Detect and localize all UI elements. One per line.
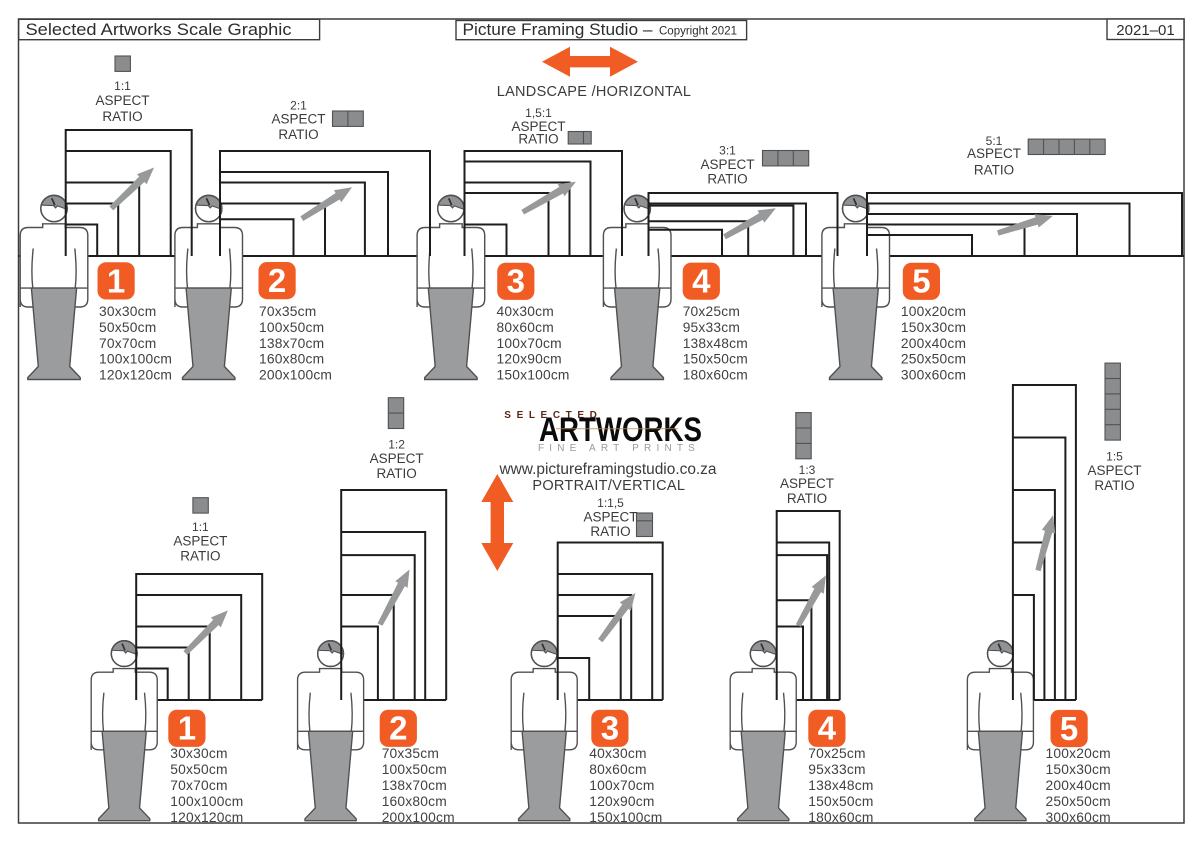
svg-text:RATIO: RATIO xyxy=(1094,478,1134,493)
svg-text:2:1: 2:1 xyxy=(290,99,307,113)
svg-text:RATIO: RATIO xyxy=(518,132,558,147)
svg-text:120x90cm: 120x90cm xyxy=(589,794,654,809)
svg-text:2: 2 xyxy=(389,710,407,747)
svg-text:160x80cm: 160x80cm xyxy=(382,794,447,809)
svg-text:RATIO: RATIO xyxy=(590,524,630,539)
svg-text:95x33cm: 95x33cm xyxy=(808,762,865,777)
svg-text:5: 5 xyxy=(912,263,930,300)
svg-text:95x33cm: 95x33cm xyxy=(683,320,740,335)
svg-text:138x70cm: 138x70cm xyxy=(382,778,447,793)
svg-text:200x40cm: 200x40cm xyxy=(1046,778,1111,793)
svg-text:1:2: 1:2 xyxy=(388,438,405,452)
svg-text:PORTRAIT/VERTICAL: PORTRAIT/VERTICAL xyxy=(532,478,685,494)
svg-text:Picture Framing Studio –: Picture Framing Studio – xyxy=(463,20,654,39)
svg-text:1:5: 1:5 xyxy=(1106,450,1123,464)
svg-text:100x70cm: 100x70cm xyxy=(497,336,562,351)
svg-text:138x48cm: 138x48cm xyxy=(683,336,748,351)
svg-text:150x100cm: 150x100cm xyxy=(497,368,570,383)
svg-text:100x50cm: 100x50cm xyxy=(382,762,447,777)
svg-text:2: 2 xyxy=(268,262,286,299)
svg-text:120x120cm: 120x120cm xyxy=(99,368,172,383)
svg-text:ASPECT: ASPECT xyxy=(271,112,325,127)
svg-text:RATIO: RATIO xyxy=(707,172,747,187)
svg-text:80x60cm: 80x60cm xyxy=(497,320,554,335)
svg-text:138x48cm: 138x48cm xyxy=(808,778,873,793)
svg-text:RATIO: RATIO xyxy=(974,163,1014,178)
svg-text:ASPECT: ASPECT xyxy=(967,146,1021,161)
svg-text:RATIO: RATIO xyxy=(376,466,416,481)
svg-text:40x30cm: 40x30cm xyxy=(589,746,646,761)
svg-text:1:1: 1:1 xyxy=(114,79,131,93)
svg-text:RATIO: RATIO xyxy=(787,491,827,506)
svg-text:70x70cm: 70x70cm xyxy=(99,336,156,351)
svg-text:120x90cm: 120x90cm xyxy=(497,352,562,367)
svg-text:5: 5 xyxy=(1060,710,1078,747)
svg-text:ASPECT: ASPECT xyxy=(700,157,754,172)
svg-text:138x70cm: 138x70cm xyxy=(259,336,324,351)
svg-text:ASPECT: ASPECT xyxy=(780,476,834,491)
svg-text:70x25cm: 70x25cm xyxy=(808,746,865,761)
svg-text:300x60cm: 300x60cm xyxy=(901,368,966,383)
svg-text:180x60cm: 180x60cm xyxy=(683,368,748,383)
svg-text:250x50cm: 250x50cm xyxy=(901,352,966,367)
svg-text:Copyright 2021: Copyright 2021 xyxy=(659,26,737,38)
svg-text:150x50cm: 150x50cm xyxy=(683,352,748,367)
svg-text:30x30cm: 30x30cm xyxy=(99,304,156,319)
svg-text:70x25cm: 70x25cm xyxy=(683,304,740,319)
svg-text:ASPECT: ASPECT xyxy=(370,451,424,466)
svg-text:40x30cm: 40x30cm xyxy=(497,304,554,319)
svg-text:120x120cm: 120x120cm xyxy=(170,810,243,825)
svg-text:1:1: 1:1 xyxy=(192,520,209,534)
svg-text:4: 4 xyxy=(818,710,837,747)
svg-text:RATIO: RATIO xyxy=(180,548,220,563)
svg-text:www.pictureframingstudio.co.za: www.pictureframingstudio.co.za xyxy=(499,461,717,478)
svg-text:1:3: 1:3 xyxy=(799,463,816,477)
svg-text:80x60cm: 80x60cm xyxy=(589,762,646,777)
svg-text:50x50cm: 50x50cm xyxy=(170,762,227,777)
svg-text:70x35cm: 70x35cm xyxy=(382,746,439,761)
svg-text:1: 1 xyxy=(178,710,196,747)
svg-text:ASPECT: ASPECT xyxy=(583,510,637,525)
svg-text:100x100cm: 100x100cm xyxy=(99,352,172,367)
svg-text:50x50cm: 50x50cm xyxy=(99,320,156,335)
svg-text:4: 4 xyxy=(692,263,711,300)
svg-text:70x35cm: 70x35cm xyxy=(259,304,316,319)
svg-text:250x50cm: 250x50cm xyxy=(1046,794,1111,809)
svg-text:100x20cm: 100x20cm xyxy=(1046,746,1111,761)
svg-text:100x20cm: 100x20cm xyxy=(901,304,966,319)
svg-text:3:1: 3:1 xyxy=(719,143,736,157)
svg-text:3: 3 xyxy=(507,263,525,300)
svg-text:ASPECT: ASPECT xyxy=(95,93,149,108)
svg-text:160x80cm: 160x80cm xyxy=(259,352,324,367)
svg-text:100x50cm: 100x50cm xyxy=(259,320,324,335)
svg-text:ASPECT: ASPECT xyxy=(173,534,227,549)
svg-text:70x70cm: 70x70cm xyxy=(170,778,227,793)
svg-text:150x50cm: 150x50cm xyxy=(808,794,873,809)
svg-text:180x60cm: 180x60cm xyxy=(808,810,873,825)
svg-text:1:1,5: 1:1,5 xyxy=(597,496,624,510)
svg-text:150x30cm: 150x30cm xyxy=(901,320,966,335)
svg-text:1,5:1: 1,5:1 xyxy=(525,106,552,120)
svg-text:FINE ART PRINTS: FINE ART PRINTS xyxy=(538,443,700,454)
svg-text:RATIO: RATIO xyxy=(278,127,318,142)
svg-text:3: 3 xyxy=(601,710,619,747)
svg-text:1: 1 xyxy=(107,262,125,299)
svg-text:30x30cm: 30x30cm xyxy=(170,746,227,761)
svg-text:150x30cm: 150x30cm xyxy=(1046,762,1111,777)
svg-text:300x60cm: 300x60cm xyxy=(1046,810,1111,825)
svg-text:RATIO: RATIO xyxy=(102,109,142,124)
svg-text:100x70cm: 100x70cm xyxy=(589,778,654,793)
svg-text:150x100cm: 150x100cm xyxy=(589,810,662,825)
svg-text:200x100cm: 200x100cm xyxy=(259,368,332,383)
svg-text:2021–01: 2021–01 xyxy=(1116,22,1174,39)
svg-text:ASPECT: ASPECT xyxy=(1087,463,1141,478)
svg-text:Selected Artworks Scale Graphi: Selected Artworks Scale Graphic xyxy=(26,20,292,39)
svg-text:200x100cm: 200x100cm xyxy=(382,810,455,825)
svg-text:LANDSCAPE /HORIZONTAL: LANDSCAPE /HORIZONTAL xyxy=(497,84,692,100)
svg-text:200x40cm: 200x40cm xyxy=(901,336,966,351)
svg-text:100x100cm: 100x100cm xyxy=(170,794,243,809)
